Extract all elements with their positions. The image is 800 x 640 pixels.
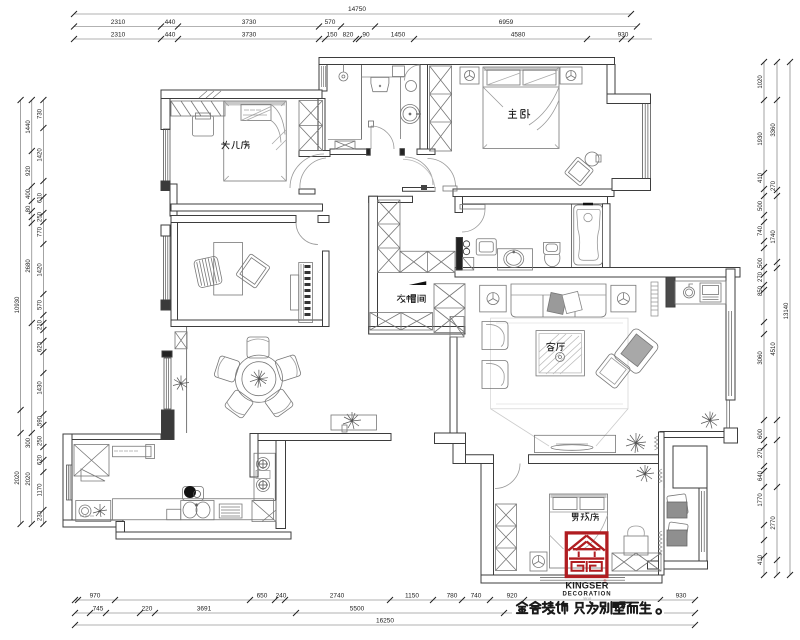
svg-text:1150: 1150 [405, 593, 419, 600]
svg-text:220: 220 [142, 606, 153, 613]
svg-text:2020: 2020 [26, 472, 32, 486]
svg-text:5500: 5500 [350, 606, 365, 613]
svg-text:780: 780 [447, 593, 458, 600]
svg-text:150: 150 [327, 32, 338, 39]
svg-text:400: 400 [26, 188, 32, 199]
svg-text:3360: 3360 [771, 123, 777, 137]
svg-text:2020: 2020 [15, 471, 21, 485]
svg-text:4510: 4510 [771, 342, 777, 356]
svg-text:2770: 2770 [771, 516, 777, 530]
svg-text:1420: 1420 [38, 148, 44, 162]
svg-text:410: 410 [758, 554, 764, 565]
svg-text:90: 90 [362, 32, 370, 39]
svg-text:3691: 3691 [197, 606, 212, 613]
svg-text:250: 250 [38, 211, 44, 222]
svg-text:930: 930 [676, 593, 687, 600]
svg-text:570: 570 [38, 299, 44, 310]
svg-text:570: 570 [325, 19, 336, 26]
svg-text:1420: 1420 [38, 263, 44, 277]
svg-text:270: 270 [758, 271, 764, 282]
svg-text:250: 250 [38, 435, 44, 446]
svg-text:600: 600 [758, 428, 764, 439]
svg-text:10930: 10930 [15, 296, 21, 313]
svg-text:740: 740 [471, 593, 482, 600]
svg-text:610: 610 [38, 192, 44, 203]
svg-text:730: 730 [38, 108, 44, 119]
svg-text:4580: 4580 [511, 32, 526, 39]
svg-text:1170: 1170 [38, 483, 44, 497]
svg-text:640: 640 [758, 470, 764, 481]
svg-text:620: 620 [38, 454, 44, 465]
svg-text:270: 270 [758, 447, 764, 458]
svg-text:920: 920 [26, 165, 32, 176]
svg-text:440: 440 [165, 32, 176, 39]
svg-text:230: 230 [38, 510, 44, 521]
svg-text:745: 745 [93, 606, 104, 613]
svg-text:1430: 1430 [38, 381, 44, 395]
svg-text:2310: 2310 [111, 19, 126, 26]
svg-text:740: 740 [758, 225, 764, 236]
svg-text:240: 240 [276, 593, 287, 600]
svg-text:210: 210 [38, 319, 44, 330]
svg-text:1450: 1450 [391, 32, 406, 39]
svg-text:500: 500 [758, 257, 764, 268]
svg-text:1930: 1930 [758, 132, 764, 146]
svg-text:6959: 6959 [499, 19, 514, 26]
svg-text:300: 300 [26, 437, 32, 448]
svg-text:590: 590 [38, 415, 44, 426]
svg-text:3510: 3510 [583, 597, 591, 601]
svg-text:650: 650 [257, 593, 268, 600]
svg-text:®: ® [604, 578, 607, 583]
svg-text:2740: 2740 [330, 593, 345, 600]
svg-text:410: 410 [758, 172, 764, 183]
svg-text:1020: 1020 [758, 75, 764, 89]
svg-text:14750: 14750 [348, 6, 366, 13]
svg-text:2310: 2310 [111, 32, 126, 39]
svg-text:270: 270 [771, 180, 777, 191]
svg-text:1740: 1740 [771, 230, 777, 244]
svg-text:80: 80 [26, 205, 32, 212]
svg-text:500: 500 [758, 200, 764, 211]
svg-text:440: 440 [165, 19, 176, 26]
svg-text:16250: 16250 [376, 618, 394, 625]
svg-text:770: 770 [38, 226, 44, 237]
svg-text:KINGSER: KINGSER [565, 581, 608, 591]
svg-text:970: 970 [90, 593, 101, 600]
svg-text:1440: 1440 [26, 120, 32, 134]
svg-text:3730: 3730 [242, 19, 257, 26]
svg-text:820: 820 [343, 32, 354, 39]
svg-text:920: 920 [507, 593, 518, 600]
svg-text:3730: 3730 [242, 32, 257, 39]
svg-text:1770: 1770 [758, 493, 764, 507]
svg-text:620: 620 [38, 341, 44, 352]
svg-text:2680: 2680 [26, 259, 32, 273]
svg-text:3060: 3060 [758, 351, 764, 365]
svg-text:930: 930 [618, 32, 629, 39]
svg-text:850: 850 [758, 285, 764, 296]
svg-text:13140: 13140 [784, 302, 790, 319]
